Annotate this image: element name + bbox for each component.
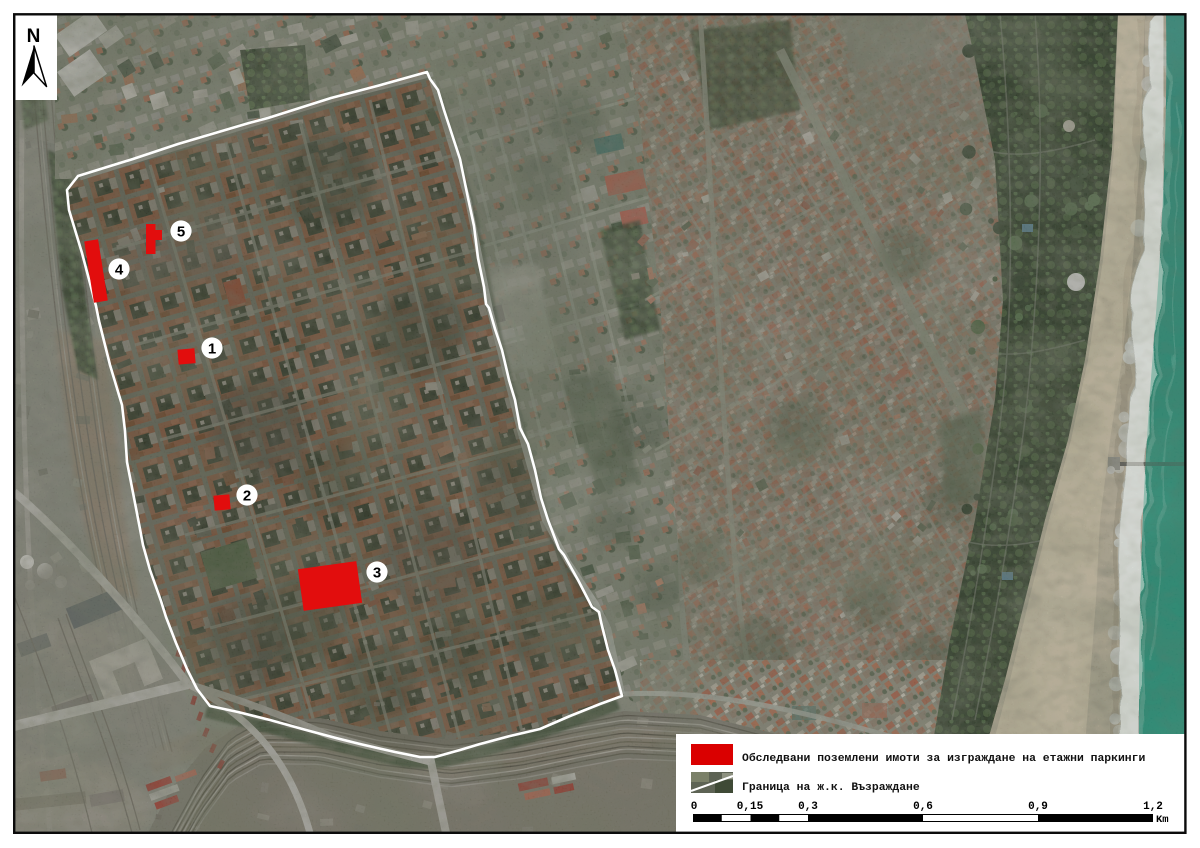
svg-text:0,9: 0,9 bbox=[1028, 801, 1048, 813]
svg-text:Граница на ж.к. Възраждане: Граница на ж.к. Възраждане bbox=[742, 782, 920, 794]
svg-text:0,3: 0,3 bbox=[798, 801, 818, 813]
svg-text:Обследвани поземлени имоти за: Обследвани поземлени имоти за изграждане… bbox=[742, 752, 1145, 765]
svg-text:0: 0 bbox=[691, 801, 698, 813]
svg-text:5: 5 bbox=[177, 224, 185, 241]
svg-text:0,15: 0,15 bbox=[737, 801, 764, 813]
svg-text:Km: Km bbox=[1156, 814, 1169, 826]
svg-text:1,2: 1,2 bbox=[1143, 801, 1163, 813]
svg-text:N: N bbox=[27, 26, 41, 47]
svg-text:0,6: 0,6 bbox=[913, 801, 933, 813]
svg-text:4: 4 bbox=[115, 262, 124, 279]
svg-text:2: 2 bbox=[243, 488, 251, 505]
svg-text:3: 3 bbox=[373, 565, 381, 582]
svg-text:1: 1 bbox=[208, 341, 216, 358]
